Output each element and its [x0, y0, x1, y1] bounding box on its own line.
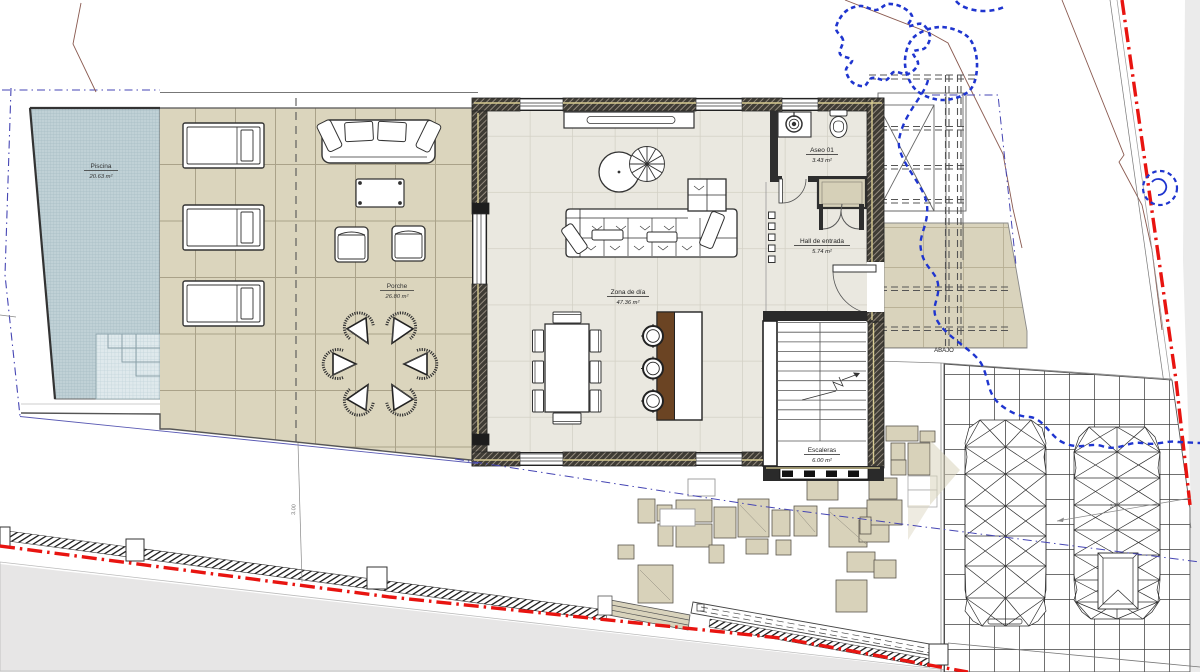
svg-text:47.36 m²: 47.36 m²: [617, 300, 641, 306]
svg-text:20.63 m²: 20.63 m²: [89, 174, 114, 180]
svg-text:26.80 m²: 26.80 m²: [385, 294, 410, 300]
svg-text:ABAJO: ABAJO: [934, 348, 954, 354]
svg-text:3.43 m²: 3.43 m²: [812, 158, 833, 164]
svg-text:6.00 m²: 6.00 m²: [812, 458, 833, 464]
svg-text:Porche: Porche: [387, 283, 408, 290]
svg-text:5.74 m²: 5.74 m²: [812, 249, 833, 255]
svg-text:3.00: 3.00: [291, 504, 298, 515]
svg-text:Hall de entrada: Hall de entrada: [800, 238, 844, 245]
svg-text:Aseo 01: Aseo 01: [810, 147, 834, 154]
svg-text:Zona de día: Zona de día: [611, 289, 646, 296]
svg-text:Escaleras: Escaleras: [808, 447, 837, 454]
svg-text:Piscina: Piscina: [91, 163, 112, 170]
